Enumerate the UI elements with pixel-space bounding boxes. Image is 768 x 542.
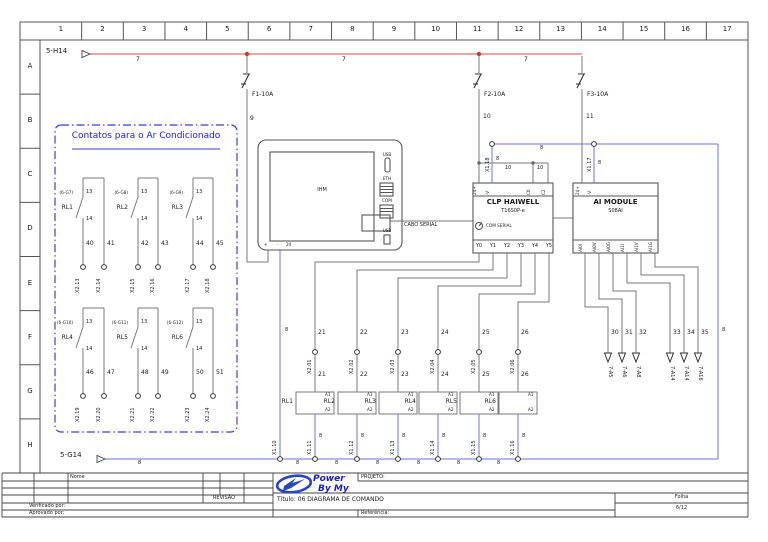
tb-nome-label: Nome (70, 475, 85, 480)
wire-number: 30 (611, 330, 619, 336)
ruler-col-6: 6 (248, 26, 290, 33)
terminal-label: X1.18 (486, 157, 491, 172)
ihm-label: IHM (302, 188, 342, 193)
ruler-row-G: G (20, 388, 40, 395)
terminal (278, 457, 283, 462)
dest-arrow-icon (619, 353, 626, 362)
fuse-label: F2-10A (484, 92, 505, 98)
coil-a2-label: A2 (528, 408, 534, 412)
terminal (516, 457, 521, 462)
ruler-col-10: 10 (415, 26, 457, 33)
coil-a2-label: A2 (367, 408, 373, 412)
serial-cable-label: CABO SERIAL (404, 223, 437, 228)
wire-number: 8 (598, 161, 601, 166)
ruler-col-2: 2 (82, 26, 124, 33)
wire-number: 8 (361, 434, 364, 439)
ruler-row-F: F (20, 334, 40, 341)
terminal (396, 457, 401, 462)
coil-a1-label: A1 (408, 393, 414, 397)
terminal-label: X2.04 (431, 359, 436, 374)
wire-number: 44 (196, 241, 204, 247)
ruler-row-E: E (20, 280, 40, 287)
wire-number: 7 (136, 57, 140, 63)
wire-number: 8 (457, 461, 460, 466)
contact-pin: 13 (196, 190, 202, 195)
tb-folha-number: 6/12 (615, 506, 748, 511)
wire-number: 48 (141, 370, 149, 376)
wire-number: 50 (196, 370, 204, 376)
wire-number: 23 (401, 330, 409, 336)
wire-number: 8 (496, 157, 499, 162)
terminal-label: X1.12 (350, 440, 355, 455)
ihm-port-label: USB (378, 229, 396, 233)
terminal (313, 350, 318, 355)
contact-name: RL3 (159, 205, 183, 211)
ai-channel-label: AI1I (621, 244, 625, 252)
ihm-port-label: USB (378, 153, 396, 157)
ruler-col-12: 12 (498, 26, 540, 33)
wire-number: 8 (402, 434, 405, 439)
terminal-label: X2.19 (76, 407, 81, 422)
output-wire (398, 253, 507, 350)
analog-wire (599, 253, 622, 353)
ruler-row-B: B (20, 117, 40, 124)
terminal (436, 457, 441, 462)
clp-top-terminal-label: C0 (527, 189, 531, 195)
terminal-label: X1.11 (308, 440, 313, 455)
wire-number: 8 (285, 328, 288, 333)
contact-ref: (6-G11) (94, 321, 128, 325)
wire-number: 24 (441, 372, 449, 378)
fuse-label: F3-10A (587, 92, 608, 98)
dest-arrow-icon (667, 353, 674, 362)
analog-wire (655, 253, 698, 353)
coil-a1-label: A1 (448, 393, 454, 397)
wire-number: 22 (360, 330, 368, 336)
terminal-label: X2.13 (76, 278, 81, 293)
clp-top-terminal-label: 24+ (473, 186, 477, 195)
relay-name: RL2 (311, 399, 335, 405)
relay-name: RL1 (269, 399, 293, 405)
wire-number: 11 (586, 114, 594, 120)
ihm-port-label: COM (378, 199, 396, 203)
wire-number: 34 (687, 330, 695, 336)
ruler-row-C: C (20, 171, 40, 178)
coil-a1-label: A1 (528, 393, 534, 397)
ruler-col-7: 7 (290, 26, 332, 33)
wire-number: 25 (482, 372, 490, 378)
contact-pin: 14 (141, 217, 147, 222)
wire-number: 43 (161, 241, 169, 247)
ruler-row-D: D (20, 225, 40, 232)
terminal (136, 265, 141, 270)
wire-number: 8 (335, 461, 338, 466)
ruler-row-A: A (20, 63, 40, 70)
tb-referencia-label: Referência: (361, 511, 389, 516)
wire-number: 21 (318, 372, 326, 378)
wire-number: 41 (107, 241, 115, 247)
wire-number: 47 (107, 370, 115, 376)
tb-projeto-label: PROJETO: (361, 475, 385, 480)
terminal (436, 350, 441, 355)
contact-ref: (6-G10) (39, 321, 73, 325)
wire-number: 22 (360, 372, 368, 378)
ruler-col-13: 13 (540, 26, 582, 33)
ruler-col-8: 8 (332, 26, 374, 33)
ai-channel-label: AI0V (593, 242, 597, 252)
coil-a2-label: A2 (489, 408, 495, 412)
contact-pin: 14 (86, 347, 92, 352)
ruler-col-9: 9 (373, 26, 415, 33)
terminal (156, 394, 161, 399)
wire-number: 8 (483, 434, 486, 439)
terminal-label: X1.15 (472, 440, 477, 455)
terminal (355, 350, 360, 355)
terminal-label: X1.13 (391, 440, 396, 455)
terminal-label: X2.02 (350, 359, 355, 374)
contact-name: RL4 (49, 335, 73, 341)
clp-output-label: Y5 (544, 244, 554, 249)
ai-channel-label: AI1G (649, 242, 653, 252)
analog-wire (641, 253, 684, 353)
fuse-label: F1-10A (252, 92, 273, 98)
tb-folha-label: Folha (615, 495, 748, 500)
contact-pin: 14 (196, 347, 202, 352)
coil-a2-label: A2 (448, 408, 454, 412)
terminal-label: X1.14 (431, 440, 436, 455)
logo-text-bottom: By My (318, 485, 349, 494)
wire-number: 42 (141, 241, 149, 247)
tb-aprovado-label: Aprovado por: (29, 511, 64, 516)
contact-pin: 14 (86, 217, 92, 222)
ai-channel-label: AI0I (579, 244, 583, 252)
wire-number: 25 (482, 330, 490, 336)
contact-ref: (6-G12) (149, 321, 183, 325)
wire-number: 32 (639, 330, 647, 336)
dest-label: 7-A14 (682, 366, 687, 381)
contact-pin: 13 (86, 320, 92, 325)
analog-wire (627, 253, 670, 353)
terminal-label: X2.17 (186, 278, 191, 293)
clp-output-label: Y3 (516, 244, 526, 249)
wire-number: 33 (673, 330, 681, 336)
ai-top-terminal-label: 24+ (576, 186, 580, 195)
tb-verificado-label: Verificado por: (29, 504, 65, 509)
wire-number: 49 (161, 370, 169, 376)
wire-number: 7 (524, 57, 528, 63)
ruler-col-14: 14 (581, 26, 623, 33)
wire-number: 8 (540, 146, 543, 151)
clp-output-label: Y4 (530, 244, 540, 249)
coil-a2-label: A2 (408, 408, 414, 412)
clp-top-terminal-label: C2 (542, 189, 546, 195)
coil-a1-label: A1 (489, 393, 495, 397)
ruler-col-3: 3 (123, 26, 165, 33)
wire-number: 40 (86, 241, 94, 247)
analog-wire (585, 253, 608, 353)
logo-text-top: Power (313, 475, 345, 484)
contact-name: RL2 (104, 205, 128, 211)
clp-model: T16S0P-e (473, 209, 553, 214)
output-wire (357, 253, 493, 350)
terminal-label: X2.01 (308, 359, 313, 374)
tb-revisao-label: REVISÃO (204, 496, 244, 501)
contact-pin: 13 (196, 320, 202, 325)
ruler-col-4: 4 (165, 26, 207, 33)
source-tag-bottom: 5-G14 (60, 452, 82, 459)
terminal (102, 394, 107, 399)
contact-pin: 13 (141, 190, 147, 195)
terminal-label: X1.10 (273, 440, 278, 455)
relay-name: RL3 (352, 399, 376, 405)
terminal (191, 265, 196, 270)
coil-a2-label: A2 (325, 408, 331, 412)
ai-channel-label: AI1V (635, 242, 639, 252)
dest-arrow-icon (633, 353, 640, 362)
wire-number: 10 (483, 114, 491, 120)
source-tag-top: 5-H14 (46, 48, 67, 55)
clp-output-label: Y2 (502, 244, 512, 249)
analog-wire (613, 253, 636, 353)
wire-number: 8 (296, 461, 299, 466)
ihm-terminal-label: + (264, 243, 268, 247)
relay-name: RL4 (392, 399, 416, 405)
terminal-label: X2.18 (206, 278, 211, 293)
dest-label: 7-A6 (620, 366, 625, 377)
contact-ref: (6-G8) (94, 191, 128, 195)
wire-number: 26 (521, 372, 529, 378)
dest-arrow-icon (695, 353, 702, 362)
wire-number: 10 (505, 166, 511, 171)
contacts-box-title: Contatos para o Ar Condicionado (56, 132, 236, 141)
terminal-label: X2.23 (186, 407, 191, 422)
clp-com-label: COM SERIAL (486, 224, 512, 228)
terminal-label: X1.17 (588, 157, 593, 172)
terminal (313, 457, 318, 462)
wire-number: 24 (441, 330, 449, 336)
clp-name: CLP HAIWELL (473, 199, 553, 206)
ihm-terminal-label: 24 (286, 243, 291, 247)
contact-ref: (6-G7) (39, 191, 73, 195)
wire-number: 45 (216, 241, 224, 247)
contact-pin: 13 (141, 320, 147, 325)
ruler-col-17: 17 (706, 26, 748, 33)
relay-name: RL6 (472, 399, 496, 405)
wire-number: 8 (376, 461, 379, 466)
wire-number: 8 (442, 434, 445, 439)
terminal-label: X2.03 (391, 359, 396, 374)
dest-label: 7-A5 (606, 366, 611, 377)
terminal-label: X2.05 (472, 359, 477, 374)
contact-pin: 14 (196, 217, 202, 222)
terminal (355, 457, 360, 462)
terminal-label: X2.16 (151, 278, 156, 293)
terminal (136, 394, 141, 399)
terminal (81, 394, 86, 399)
terminal (81, 265, 86, 270)
wire-number: 8 (497, 461, 500, 466)
dest-arrow-icon (605, 353, 612, 362)
contact-ref: (6-G9) (149, 191, 183, 195)
tb-titulo: Título: 06 DIAGRAMA DE COMANDO (277, 497, 384, 503)
dest-arrow-icon (681, 353, 688, 362)
terminal (211, 265, 216, 270)
terminal-label: X2.14 (97, 278, 102, 293)
ruler-col-5: 5 (207, 26, 249, 33)
terminal (396, 350, 401, 355)
dest-label: 7-A16 (696, 366, 701, 381)
wire-number: 8 (417, 461, 420, 466)
ihm-port-label: ETH (378, 177, 396, 181)
coil-a1-label: A1 (325, 393, 331, 397)
ruler-col-15: 15 (623, 26, 665, 33)
contact-name: RL6 (159, 335, 183, 341)
wire-number: 46 (86, 370, 94, 376)
ruler-col-1: 1 (40, 26, 82, 33)
wire-number: 21 (318, 330, 326, 336)
ai-module-model: S08AI (573, 209, 658, 214)
terminal (516, 350, 521, 355)
wire-number: 31 (625, 330, 633, 336)
terminal (477, 457, 482, 462)
wire-number: 51 (216, 370, 224, 376)
ruler-row-H: H (20, 442, 40, 449)
wire-number: 7 (342, 57, 346, 63)
contact-pin: 14 (141, 347, 147, 352)
terminal-label: X2.20 (97, 407, 102, 422)
ihm-terminal-label: - (277, 243, 279, 247)
terminal-label: X2.21 (131, 407, 136, 422)
wire-number: 23 (401, 372, 409, 378)
wire-number: 8 (319, 434, 322, 439)
wire-number: 10 (537, 166, 543, 171)
output-wire (315, 253, 479, 350)
terminal (477, 350, 482, 355)
terminal-label: X2.15 (131, 278, 136, 293)
wire-number: 8 (722, 328, 725, 333)
ruler-col-16: 16 (665, 26, 707, 33)
clp-output-label: Y1 (488, 244, 498, 249)
wire-number: 8 (138, 461, 141, 466)
terminal (156, 265, 161, 270)
terminal-label: X1.16 (511, 440, 516, 455)
clp-top-terminal-label: -V (486, 191, 490, 195)
ai-channel-label: AI0G (607, 242, 611, 252)
schematic-generated-layer (0, 0, 768, 542)
dest-label: 7-A8 (634, 366, 639, 377)
wire-number: 26 (521, 330, 529, 336)
coil-a1-label: A1 (367, 393, 373, 397)
ruler-col-11: 11 (456, 26, 498, 33)
relay-name: RL5 (433, 399, 457, 405)
terminal-label: X2.24 (206, 407, 211, 422)
clp-output-label: Y0 (474, 244, 484, 249)
terminal-label: X2.22 (151, 407, 156, 422)
terminal (191, 394, 196, 399)
terminal-label: X2.06 (511, 359, 516, 374)
wire-number: 9 (250, 116, 254, 122)
terminal (211, 394, 216, 399)
wire-number: 35 (701, 330, 709, 336)
contact-name: RL1 (49, 205, 73, 211)
dest-label: 7-A14 (668, 366, 673, 381)
contact-name: RL5 (104, 335, 128, 341)
schematic-sheet: 5-H14 5-G14 Contatos para o Ar Condicion… (0, 0, 768, 542)
contact-pin: 13 (86, 190, 92, 195)
ai-top-terminal-label: -V (588, 191, 592, 195)
ai-module-name: AI MODULE (573, 199, 658, 206)
wire-number: 8 (522, 434, 525, 439)
terminal (102, 265, 107, 270)
